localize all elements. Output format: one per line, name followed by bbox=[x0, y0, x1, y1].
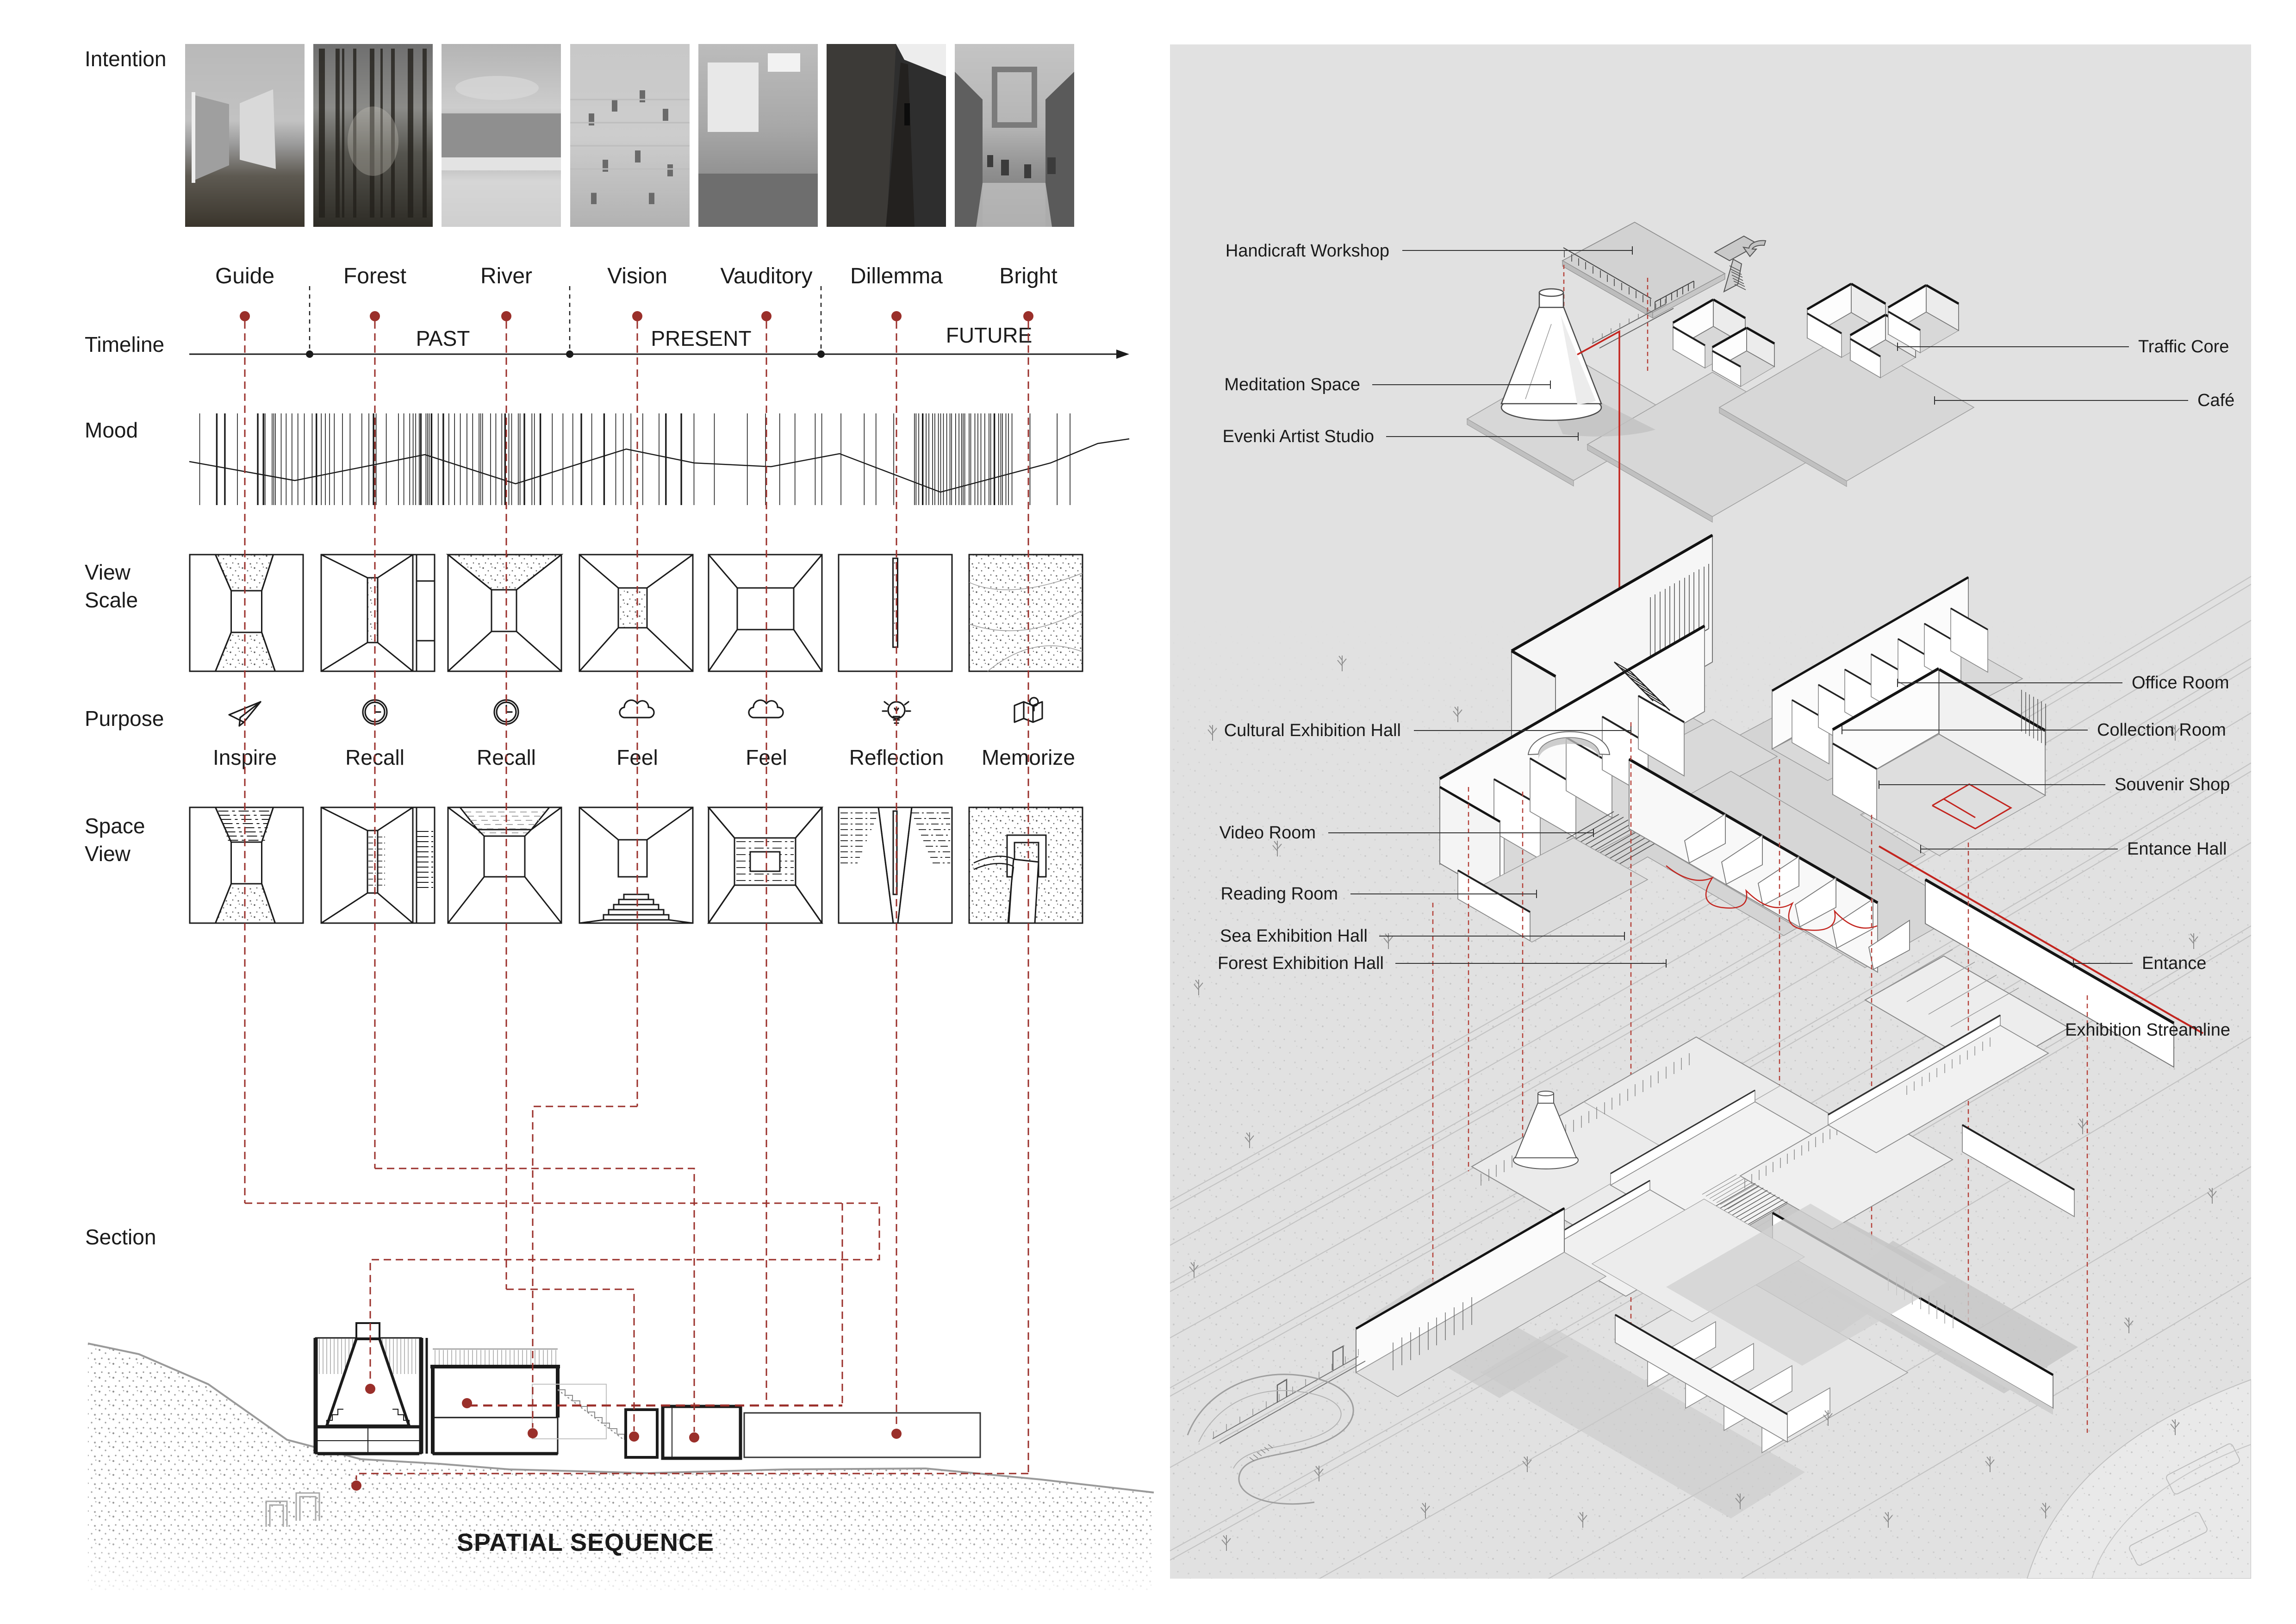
svg-text:Intention: Intention bbox=[85, 47, 166, 71]
svg-text:PRESENT: PRESENT bbox=[651, 326, 751, 350]
svg-text:Collection Room: Collection Room bbox=[2097, 720, 2226, 740]
svg-text:Café: Café bbox=[2197, 391, 2234, 410]
svg-text:Traffic Core: Traffic Core bbox=[2138, 337, 2229, 356]
svg-text:View: View bbox=[85, 560, 131, 584]
svg-text:Video Room: Video Room bbox=[1220, 823, 1316, 843]
svg-text:Purpose: Purpose bbox=[85, 706, 164, 731]
svg-text:Space: Space bbox=[85, 814, 145, 838]
svg-text:Entance Hall: Entance Hall bbox=[2127, 839, 2227, 859]
svg-text:Cultural Exhibition Hall: Cultural Exhibition Hall bbox=[1224, 721, 1401, 740]
svg-text:Meditation Space: Meditation Space bbox=[1224, 375, 1360, 394]
svg-text:Vision: Vision bbox=[607, 264, 667, 288]
svg-text:Handicraft Workshop: Handicraft Workshop bbox=[1226, 241, 1389, 261]
svg-text:River: River bbox=[480, 264, 532, 288]
svg-text:PAST: PAST bbox=[416, 326, 470, 350]
svg-text:Scale: Scale bbox=[85, 588, 138, 612]
svg-text:Forest Exhibition Hall: Forest Exhibition Hall bbox=[1218, 954, 1384, 973]
svg-text:Sea Exhibition Hall: Sea Exhibition Hall bbox=[1220, 926, 1368, 946]
svg-text:Reading Room: Reading Room bbox=[1221, 884, 1338, 904]
svg-text:Dillemma: Dillemma bbox=[850, 264, 943, 288]
svg-text:Evenki Artist Studio: Evenki Artist Studio bbox=[1223, 427, 1374, 446]
svg-text:Vauditory: Vauditory bbox=[720, 264, 812, 288]
svg-text:Exhibition Streamline: Exhibition Streamline bbox=[2065, 1020, 2230, 1040]
svg-text:Souvenir Shop: Souvenir Shop bbox=[2115, 775, 2230, 794]
svg-text:Section: Section bbox=[85, 1225, 156, 1249]
svg-text:FUTURE: FUTURE bbox=[946, 323, 1033, 347]
svg-text:Entance: Entance bbox=[2142, 954, 2206, 973]
svg-text:Bright: Bright bbox=[999, 264, 1057, 288]
svg-text:Forest: Forest bbox=[343, 264, 406, 288]
svg-text:Office Room: Office Room bbox=[2132, 673, 2229, 693]
svg-text:View: View bbox=[85, 842, 131, 866]
svg-text:Mood: Mood bbox=[85, 418, 138, 442]
svg-text:Timeline: Timeline bbox=[85, 332, 164, 356]
svg-text:SPATIAL SEQUENCE: SPATIAL SEQUENCE bbox=[457, 1529, 714, 1556]
svg-text:Guide: Guide bbox=[215, 264, 274, 288]
